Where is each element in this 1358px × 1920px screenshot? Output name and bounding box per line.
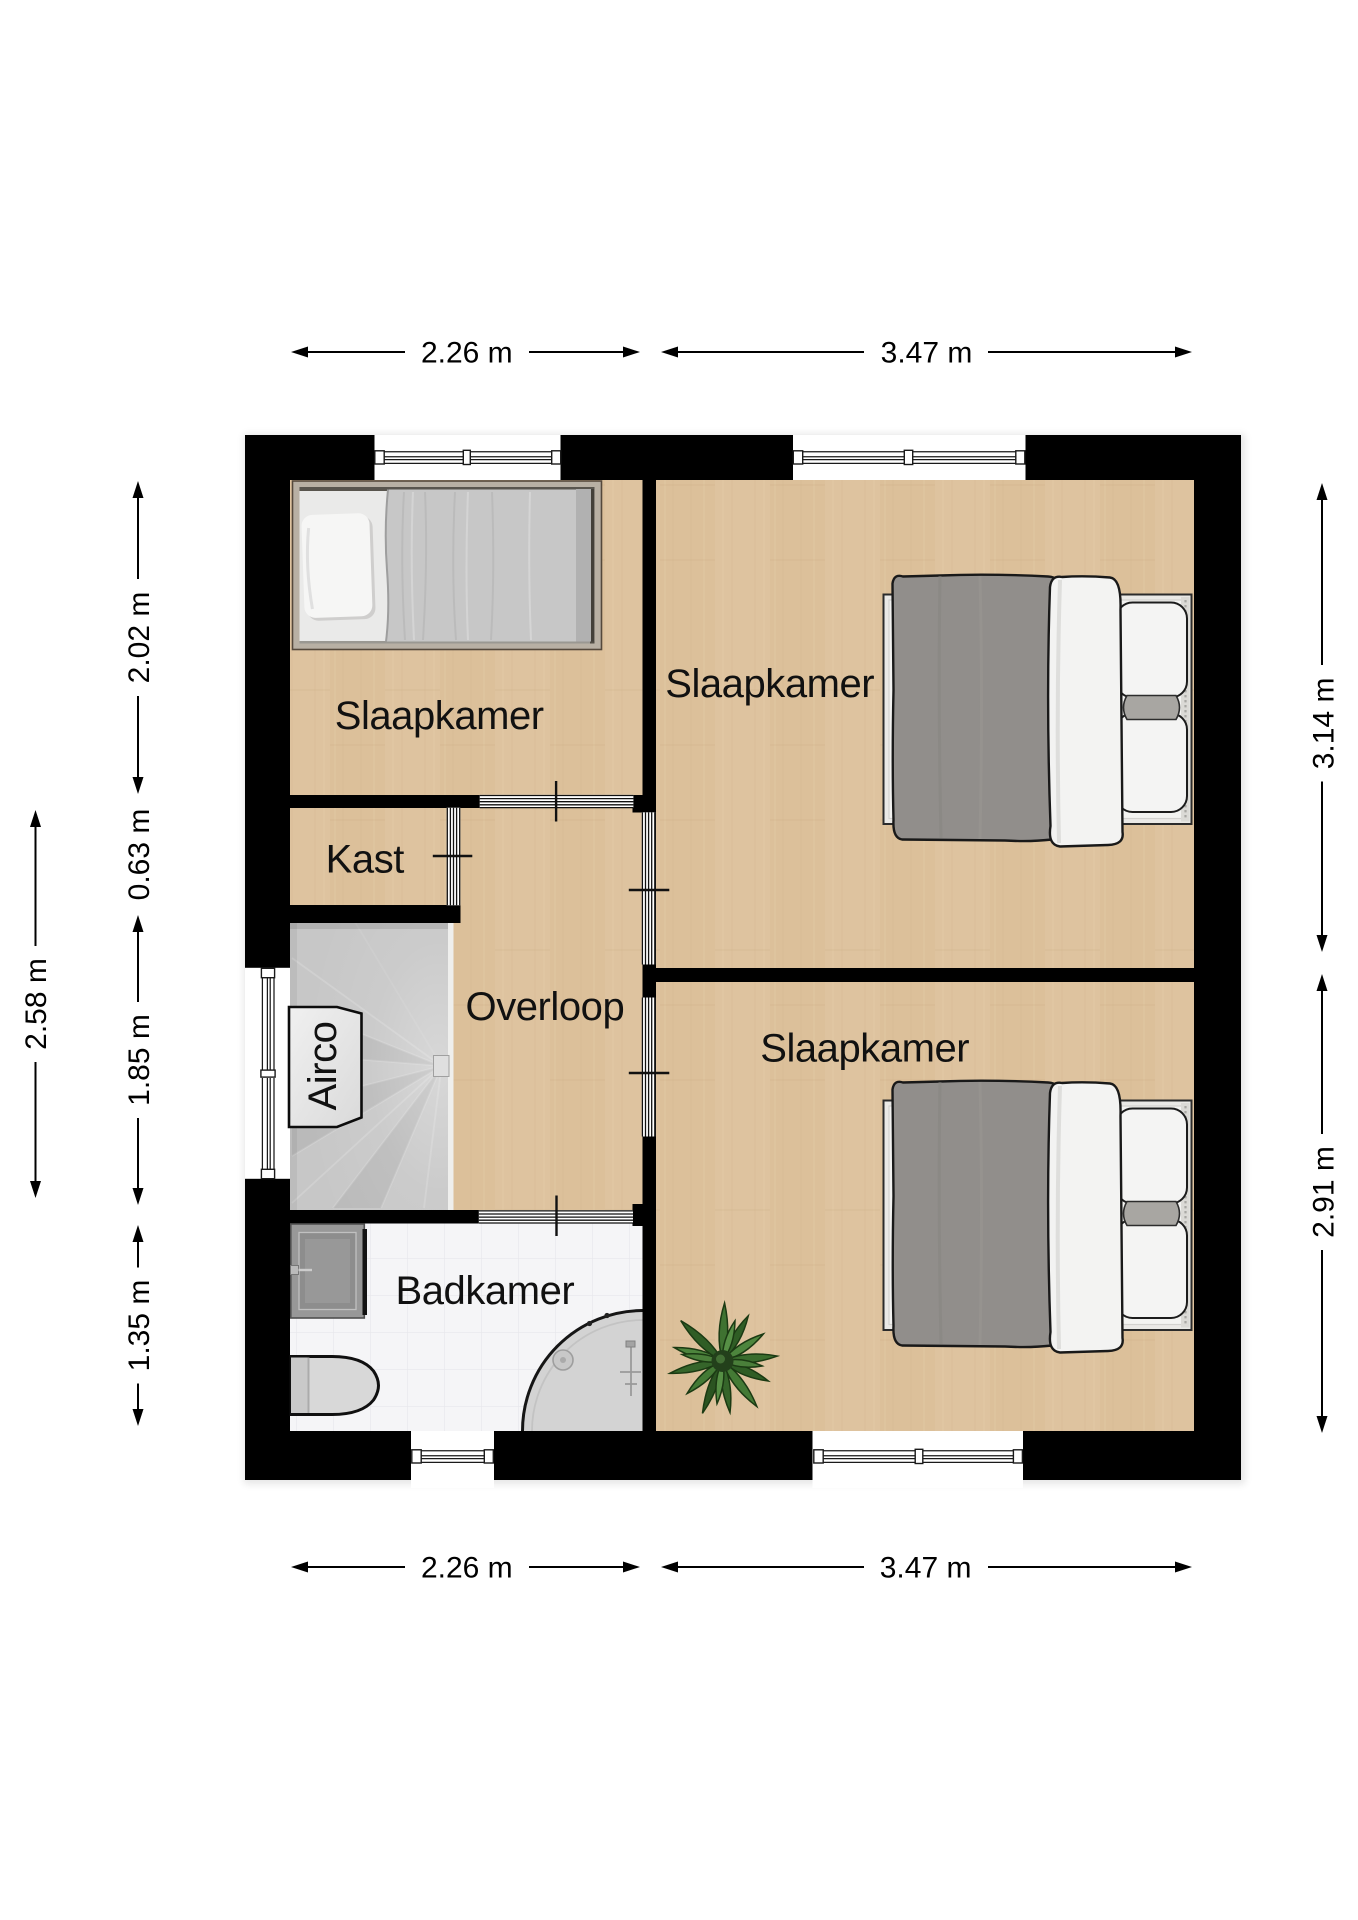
svg-text:1.35 m: 1.35 m [123, 1280, 156, 1372]
svg-text:Kast: Kast [326, 837, 405, 881]
svg-text:Badkamer: Badkamer [396, 1269, 575, 1313]
svg-text:Slaapkamer: Slaapkamer [665, 662, 874, 706]
svg-text:3.47 m: 3.47 m [880, 1552, 972, 1585]
svg-text:2.26 m: 2.26 m [421, 1552, 513, 1585]
svg-text:Overloop: Overloop [466, 985, 625, 1029]
svg-text:1.85 m: 1.85 m [123, 1014, 156, 1106]
svg-text:Slaapkamer: Slaapkamer [760, 1027, 969, 1071]
svg-text:2.91 m: 2.91 m [1308, 1146, 1341, 1238]
svg-text:Slaapkamer: Slaapkamer [335, 694, 544, 738]
svg-text:2.26 m: 2.26 m [421, 337, 513, 370]
svg-text:Airco: Airco [301, 1022, 345, 1111]
svg-text:2.58 m: 2.58 m [20, 958, 53, 1050]
svg-text:0.63 m: 0.63 m [123, 809, 156, 901]
svg-text:2.02 m: 2.02 m [123, 592, 156, 684]
svg-text:3.47 m: 3.47 m [881, 337, 973, 370]
svg-text:3.14 m: 3.14 m [1308, 678, 1341, 770]
